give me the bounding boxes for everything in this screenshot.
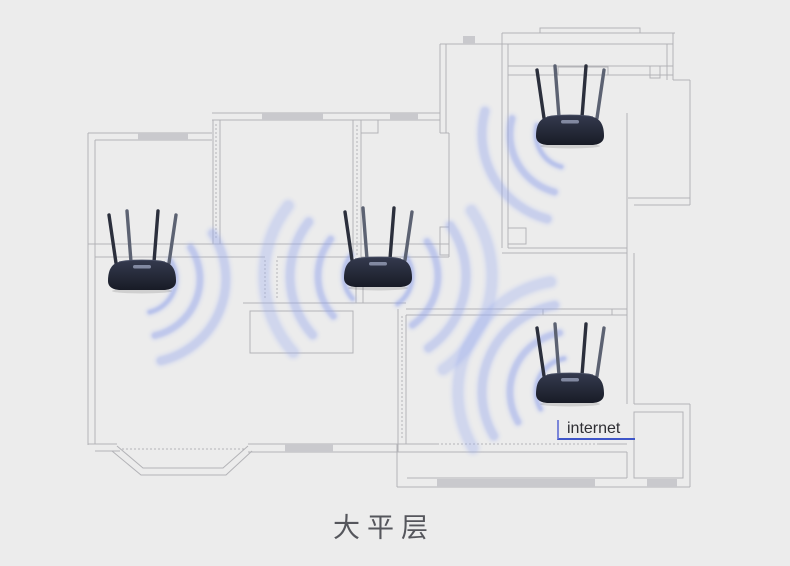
- antenna: [597, 70, 604, 118]
- antenna: [154, 211, 158, 262]
- router-body: [536, 373, 604, 403]
- antenna: [390, 208, 394, 259]
- caption-title: 大平层: [0, 506, 790, 545]
- antenna: [363, 208, 367, 259]
- internet-label-text: internet: [567, 420, 620, 438]
- router-logo: [561, 378, 579, 382]
- antenna: [582, 66, 586, 117]
- router-body: [344, 257, 412, 287]
- router-body: [108, 260, 176, 290]
- router-middle: [344, 208, 412, 291]
- antenna: [109, 215, 116, 263]
- router-top-right: [536, 66, 604, 149]
- router-left: [108, 211, 176, 294]
- floorplan-diagram: internet 大平层: [0, 0, 790, 566]
- router-logo: [369, 262, 387, 266]
- bay-window-outline: [112, 451, 252, 475]
- antenna: [582, 324, 586, 375]
- wifi-waves: [458, 282, 564, 448]
- wifi-waves: [150, 233, 226, 360]
- antenna: [537, 70, 544, 118]
- internet-label: internet: [557, 420, 635, 440]
- floorplan-svg: [0, 0, 790, 566]
- router-logo: [133, 265, 151, 269]
- antenna: [127, 211, 131, 262]
- router-body: [536, 115, 604, 145]
- antenna: [597, 328, 604, 376]
- router-logo: [561, 120, 579, 124]
